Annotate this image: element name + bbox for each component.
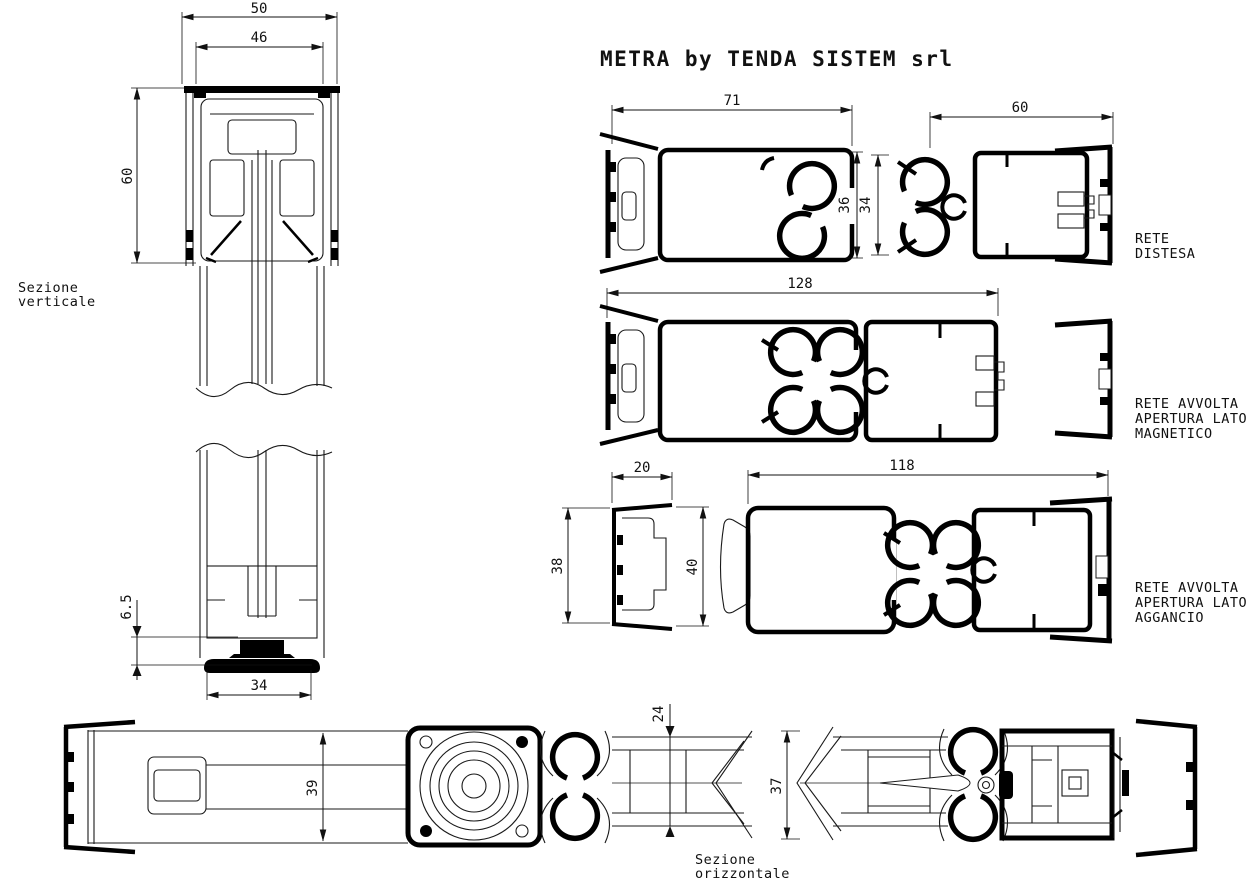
- svg-text:39: 39: [305, 780, 321, 797]
- drawing-title: METRA by TENDA SISTEM srl: [600, 47, 954, 71]
- svg-text:37: 37: [769, 778, 785, 795]
- net-hook-label-line1: RETE AVVOLTA: [1135, 580, 1239, 596]
- clip-connector: [541, 731, 610, 843]
- svg-text:118: 118: [889, 458, 914, 474]
- roller-cassette: [408, 728, 540, 845]
- dim-total-width-128: 128: [607, 276, 998, 318]
- net-extended-label-line2: DISTESA: [1135, 246, 1195, 262]
- handle-profile: [1002, 731, 1129, 838]
- svg-text:20: 20: [634, 460, 651, 476]
- technical-drawing-canvas: METRA by TENDA SISTEM srl 50 46 60: [0, 0, 1250, 894]
- net-spline-spear: [880, 775, 970, 791]
- svg-text:50: 50: [251, 1, 268, 17]
- dim-net-channel-24: 24: [651, 704, 675, 837]
- net-hook-label-line3: AGGANCIO: [1135, 610, 1204, 626]
- wall-bracket: [600, 306, 658, 444]
- roller-clip: [781, 154, 843, 216]
- net-magnetic-label-line3: MAGNETICO: [1135, 426, 1213, 442]
- bottom-gasket: [204, 659, 320, 673]
- svg-text:40: 40: [685, 559, 701, 576]
- svg-text:128: 128: [787, 276, 812, 292]
- pull-bar-profile: [864, 322, 1004, 440]
- svg-text:6.5: 6.5: [119, 594, 135, 619]
- brush-seals: [211, 221, 313, 255]
- dim-guide-height-40: 40: [676, 507, 709, 626]
- cassette-profile: [660, 322, 856, 440]
- svg-text:60: 60: [1012, 100, 1029, 116]
- dim-inner-width-46: 46: [196, 30, 323, 84]
- wall-bracket-right: [1136, 721, 1197, 855]
- svg-text:46: 46: [251, 30, 268, 46]
- dim-guide-width-20: 20: [612, 460, 672, 503]
- net-channel-left: [612, 731, 752, 838]
- guide-bracket: [1055, 321, 1112, 437]
- dim-head-height-60: 60: [120, 88, 196, 263]
- net-extended-label-line1: RETE: [1135, 231, 1170, 247]
- svg-text:36: 36: [837, 197, 853, 214]
- dim-bottom-width-34: 34: [207, 670, 311, 700]
- magnet-strip: [1122, 770, 1129, 796]
- bottom-terminal: [204, 566, 320, 673]
- guide-profile: [612, 505, 672, 629]
- wall-bracket-left: [64, 722, 135, 852]
- guide-bracket-engaged: [1050, 499, 1112, 641]
- side-rail: [88, 730, 408, 844]
- svg-text:34: 34: [251, 678, 268, 694]
- net-hook-label-line2: APERTURA LATO: [1135, 595, 1247, 611]
- dim-cassette-width-71: 71: [612, 93, 852, 146]
- svg-text:60: 60: [120, 168, 136, 185]
- dim-total-width-118: 118: [748, 458, 1108, 504]
- guide-channel: [196, 266, 332, 658]
- wall-bracket: [600, 134, 658, 272]
- break-edge: [797, 727, 833, 840]
- vertical-section-drawing: 50 46 60: [18, 1, 340, 700]
- break-line-bottom: [196, 443, 332, 457]
- break-edge: [805, 736, 841, 831]
- dim-handle-height-37: 37: [769, 731, 800, 839]
- net-magnetic-label-line1: RETE AVVOLTA: [1135, 396, 1239, 412]
- dim-bar-width-60: 60: [930, 100, 1113, 148]
- horizontal-section-drawing: 39 24: [64, 704, 1197, 882]
- net-magnetic-label-line2: APERTURA LATO: [1135, 411, 1247, 427]
- dim-guide-height-38: 38: [550, 508, 610, 623]
- pull-bar-profile: [972, 510, 1090, 630]
- technical-drawing-page: METRA by TENDA SISTEM srl 50 46 60: [0, 0, 1250, 894]
- svg-text:71: 71: [724, 93, 741, 109]
- svg-text:24: 24: [651, 706, 667, 723]
- dim-rail-height-39: 39: [305, 733, 323, 841]
- cassette-profile: [748, 508, 894, 632]
- break-edge: [716, 731, 752, 838]
- profile-net-rolled-hook: 20 118 38 40: [550, 458, 1247, 641]
- profile-net-rolled-magnetic: 128 RETE AVVOLTA APERTURA LATO MAGNETICO: [600, 276, 1247, 444]
- break-line-top: [196, 382, 332, 396]
- svg-text:34: 34: [858, 197, 874, 214]
- svg-text:38: 38: [550, 558, 566, 575]
- profile-net-extended: 71 60 36 34: [600, 93, 1195, 272]
- vertical-section-label-line2: verticale: [18, 294, 96, 310]
- clip-connector-handle: [880, 729, 1013, 841]
- horizontal-section-label-line2: orizzontale: [695, 866, 790, 882]
- pull-bar-profile: [894, 150, 1094, 263]
- dim-bar-height-34: 34: [858, 155, 889, 255]
- bottom-brush: [240, 640, 284, 654]
- rubber-wedge: [721, 519, 751, 613]
